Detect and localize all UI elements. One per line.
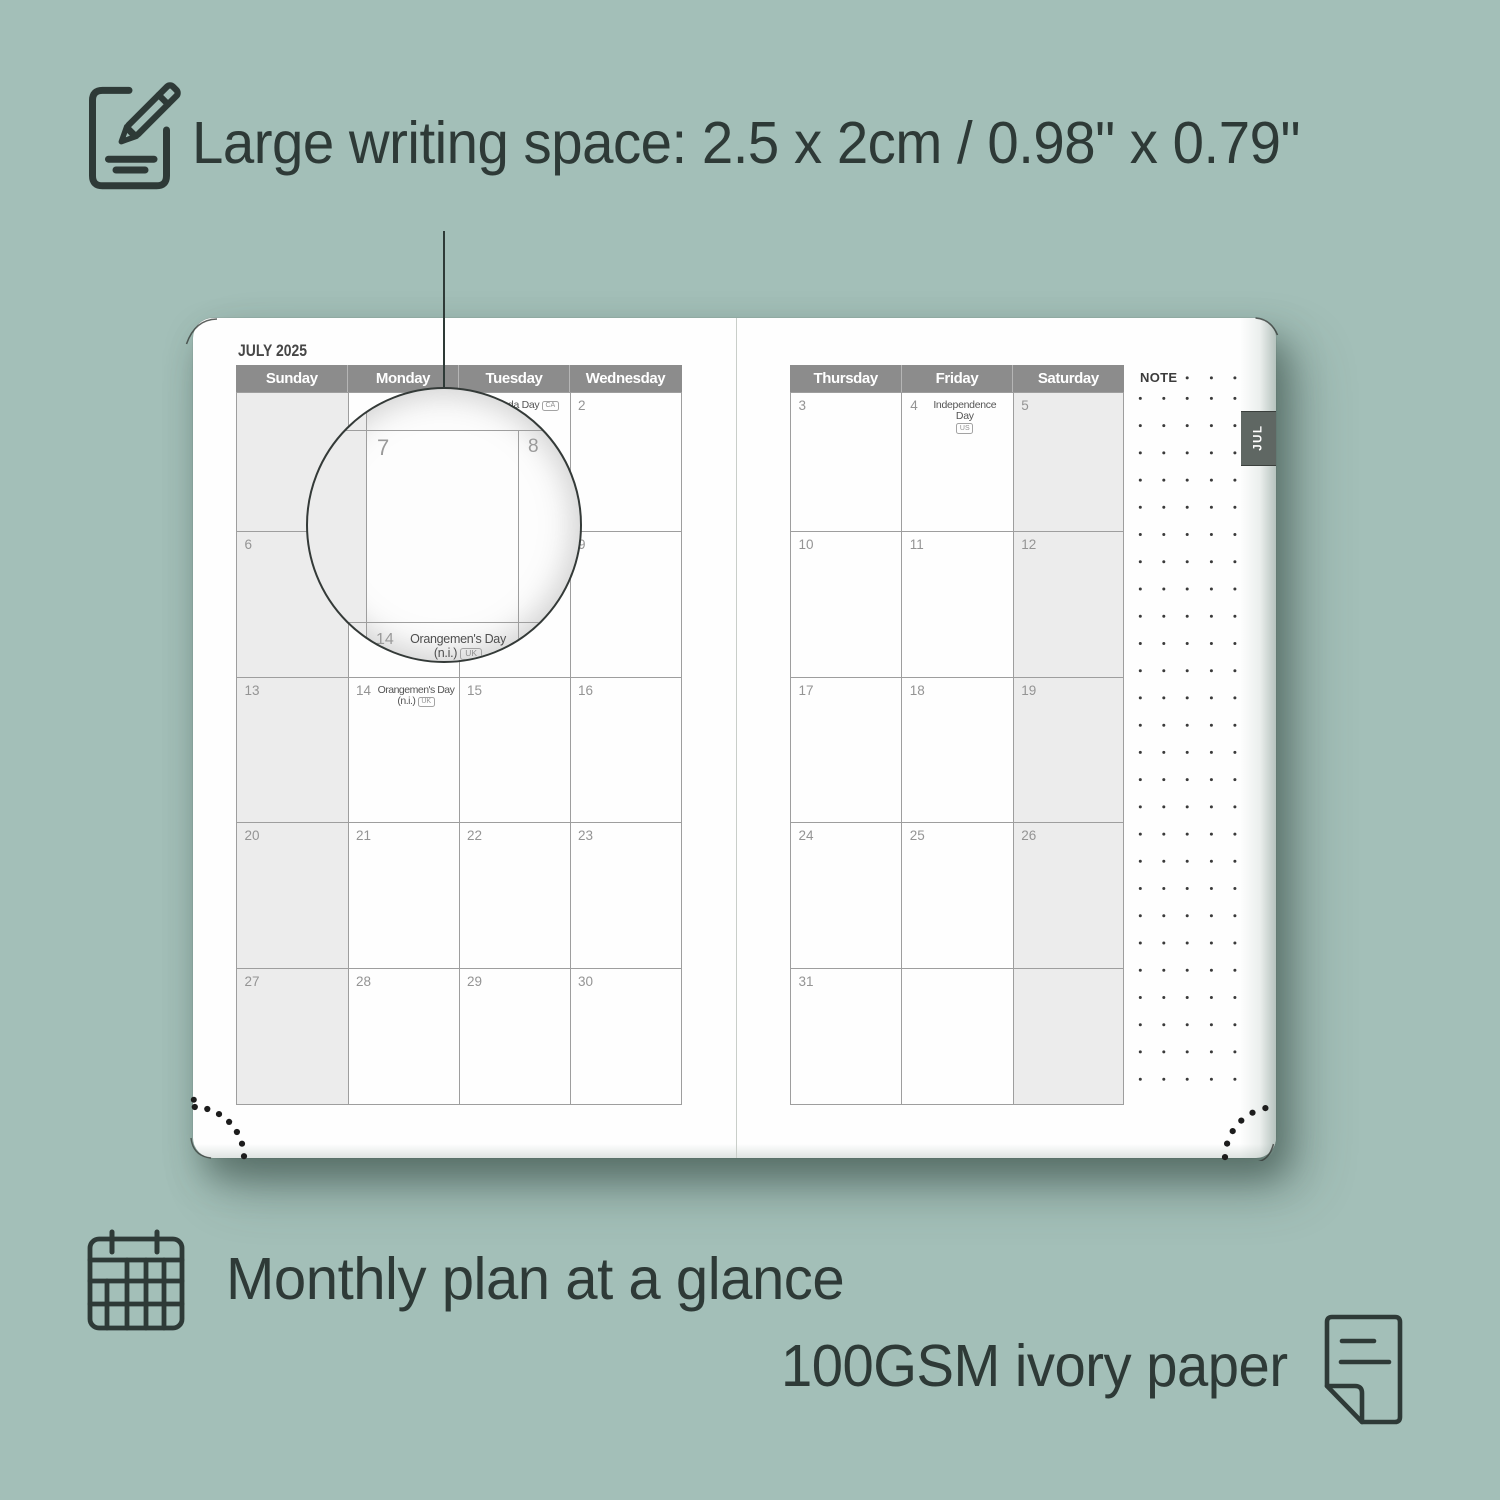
svg-text:JUL: JUL bbox=[1252, 424, 1264, 450]
